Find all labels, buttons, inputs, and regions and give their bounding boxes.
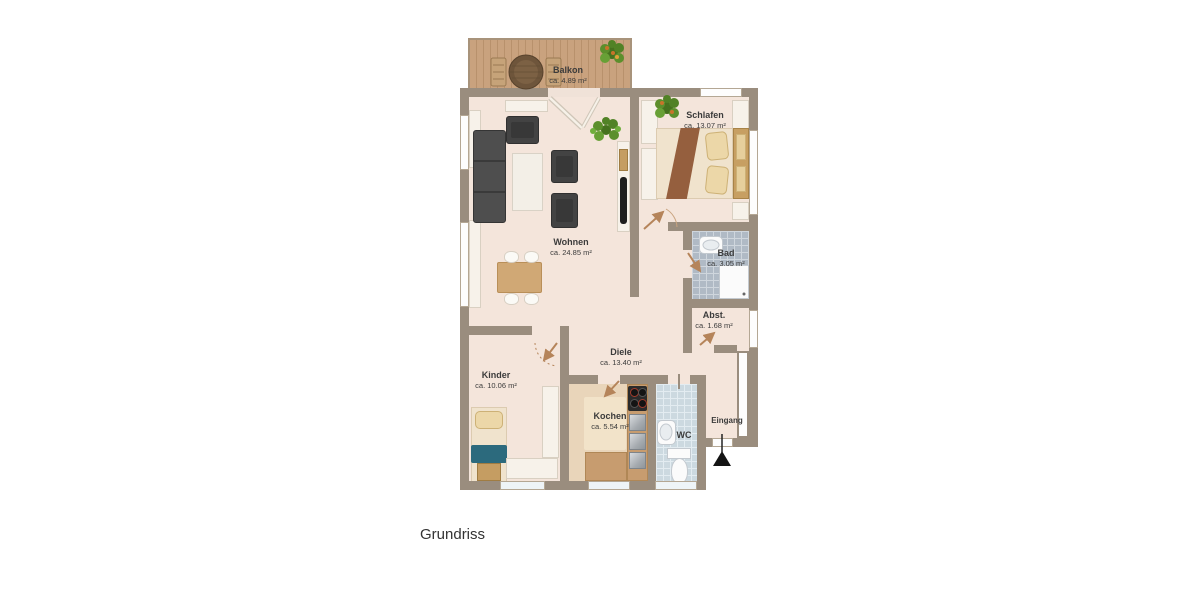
kids-wardrobe: [542, 386, 559, 458]
shower: [719, 265, 749, 299]
window-left-wohnen-1: [460, 115, 469, 170]
wall-entrance-right: [733, 438, 758, 447]
wall-right-3: [749, 348, 758, 447]
stove-burner: [638, 388, 647, 397]
wall-kinder-kochen: [560, 326, 569, 481]
wall-below-schlafen: [668, 222, 758, 231]
armchair-cushion: [556, 199, 573, 222]
window-board-left-bottom: [469, 220, 481, 308]
bed-pillow: [705, 131, 730, 161]
wall-left-1: [460, 88, 469, 115]
room-label-kochen: Kochen ca. 5.54 m²: [570, 411, 650, 432]
room-name: Abst.: [674, 310, 754, 321]
window-right-schlafen: [749, 130, 758, 215]
wall-wohnen-kinder: [460, 326, 532, 335]
kids-chair: [477, 463, 501, 481]
wall-kochen-top-1: [569, 375, 598, 384]
stove: [628, 386, 647, 411]
armchair-top: [506, 116, 539, 144]
room-label-abst: Abst. ca. 1.68 m²: [674, 310, 754, 331]
wall-bottom-2: [545, 481, 588, 490]
window-left-wohnen-2: [460, 222, 469, 307]
wall-left-2: [460, 170, 469, 222]
armchair-right-1: [551, 150, 578, 183]
kitchen-appliance: [629, 433, 646, 450]
room-name: Bad: [686, 248, 766, 259]
stove-burner: [638, 399, 647, 408]
wall-bottom-1: [460, 481, 500, 490]
armchair-cushion: [511, 122, 534, 138]
room-label-kinder: Kinder ca. 10.06 m²: [456, 370, 536, 391]
dining-chair: [504, 293, 519, 305]
room-label-wc: WC: [664, 430, 704, 441]
tv: [620, 177, 627, 224]
room-label-schlafen: Schlafen ca. 13.07 m²: [665, 110, 745, 131]
room-label-balkon: Balkon ca. 4.89 m²: [528, 65, 608, 86]
room-area: ca. 1.68 m²: [674, 321, 754, 330]
wall-bottom-3: [630, 481, 655, 490]
kids-bed-pillow: [475, 411, 503, 429]
coffee-table: [512, 153, 543, 211]
dining-chair: [524, 293, 539, 305]
wall-bad-abst: [692, 299, 749, 308]
room-name: Kochen: [570, 411, 650, 422]
floorplan-canvas: Balkon ca. 4.89 m² Wohnen ca. 24.85 m² S…: [0, 0, 1200, 600]
wall-right-1: [749, 88, 758, 130]
entrance-door-opening: [712, 438, 733, 447]
wall-bottom-4: [697, 481, 706, 490]
room-name: Schlafen: [665, 110, 745, 121]
room-name: Wohnen: [531, 237, 611, 248]
dining-table: [497, 262, 542, 293]
room-name: Eingang: [689, 416, 765, 426]
window-bottom-wc: [655, 481, 697, 490]
window-bottom-kochen: [588, 481, 630, 490]
kitchen-appliance: [629, 452, 646, 469]
wall-wc-eingang: [697, 375, 706, 481]
window-board-schlafen-mid: [732, 202, 749, 220]
wall-wohnen-schlafen: [630, 97, 639, 297]
room-label-bad: Bad ca. 3.05 m²: [686, 248, 766, 269]
double-bed: [656, 128, 749, 199]
bed-pillow: [705, 165, 730, 195]
wall-below-abst: [714, 345, 737, 353]
headboard-cushion: [736, 166, 746, 192]
lowboard-top-wall: [505, 100, 548, 112]
room-name: WC: [664, 430, 704, 441]
outside-area: [706, 447, 758, 490]
room-area: ca. 13.07 m²: [665, 121, 745, 130]
headboard-cushion: [736, 134, 746, 160]
dining-chair: [504, 251, 519, 263]
kitchen-counter-bottom: [585, 452, 627, 481]
wall-wc-top-1: [656, 375, 668, 384]
balcony-door-opening: [548, 88, 600, 97]
kids-sideboard: [506, 458, 558, 479]
wall-top-left: [460, 88, 548, 97]
wall-wc-top-2: [690, 375, 697, 384]
room-area: ca. 3.05 m²: [686, 259, 766, 268]
kids-bed: [471, 407, 507, 482]
room-label-eingang: Eingang: [689, 416, 765, 426]
armchair-right-2: [551, 193, 578, 228]
armchair-cushion: [556, 156, 573, 177]
room-label-wohnen: Wohnen ca. 24.85 m²: [531, 237, 611, 258]
room-name: Balkon: [528, 65, 608, 76]
plan-caption: Grundriss: [420, 526, 485, 543]
sideboard-deco: [619, 149, 628, 171]
sofa: [473, 130, 506, 223]
room-name: Kinder: [456, 370, 536, 381]
wall-top-mid: [600, 88, 700, 97]
room-label-diele: Diele ca. 13.40 m²: [581, 347, 661, 368]
room-area: ca. 13.40 m²: [581, 358, 661, 367]
room-area: ca. 4.89 m²: [528, 76, 608, 85]
room-area: ca. 5.54 m²: [570, 422, 650, 431]
room-area: ca. 10.06 m²: [456, 381, 536, 390]
room-name: Diele: [581, 347, 661, 358]
room-area: ca. 24.85 m²: [531, 248, 611, 257]
kids-bed-blanket: [471, 445, 507, 463]
window-bottom-kinder: [500, 481, 545, 490]
window-top-schlafen: [700, 88, 742, 97]
